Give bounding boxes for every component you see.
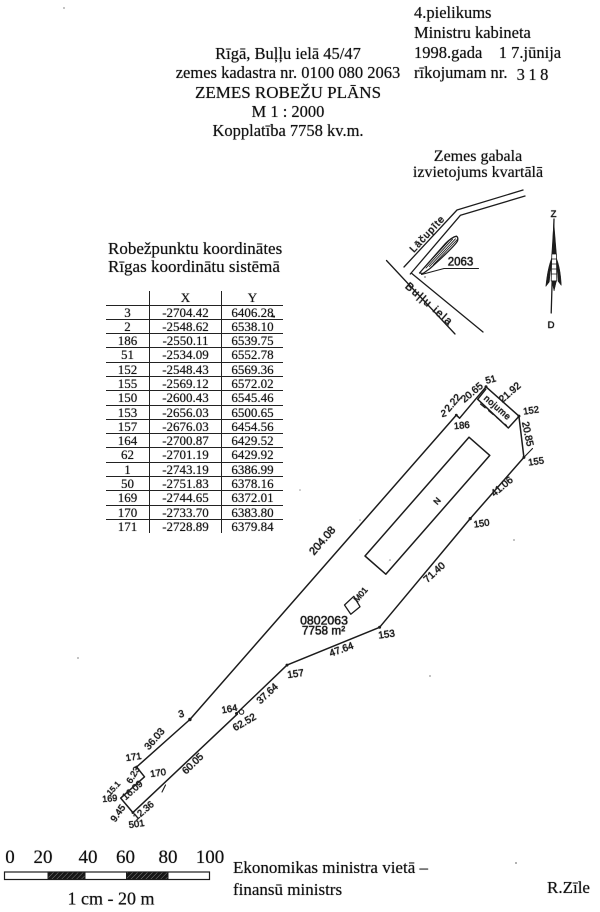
svg-text:170: 170 [150,767,167,780]
svg-text:169: 169 [102,793,118,804]
svg-text:60.05: 60.05 [180,751,206,777]
svg-text:7758 m²: 7758 m² [302,624,345,638]
svg-text:71.40: 71.40 [422,560,448,585]
svg-text:47.64: 47.64 [328,641,356,660]
svg-text:21.92: 21.92 [497,380,523,405]
svg-text:100: 100 [196,847,225,868]
svg-text:20.85: 20.85 [519,421,535,448]
svg-text:80: 80 [159,847,178,868]
svg-text:153: 153 [378,628,396,641]
svg-text:Z: Z [551,209,557,220]
svg-text:155: 155 [528,455,545,468]
svg-text:D: D [548,320,555,331]
svg-text:41.06: 41.06 [489,475,516,500]
svg-text:152: 152 [523,404,540,417]
svg-text:186: 186 [453,420,470,432]
svg-text:N: N [431,495,443,506]
svg-text:51: 51 [484,373,497,386]
svg-text:150: 150 [473,517,490,530]
svg-text:157: 157 [287,668,305,681]
svg-text:62.52: 62.52 [231,712,259,734]
svg-text:2063: 2063 [448,257,474,269]
svg-text:36.03: 36.03 [143,726,168,752]
svg-text:20: 20 [34,847,53,868]
svg-text:171: 171 [125,751,142,764]
svg-text:0: 0 [5,847,15,868]
svg-text:60: 60 [116,847,135,868]
svg-text:37.64: 37.64 [255,681,281,706]
svg-text:204.08: 204.08 [307,524,338,557]
svg-text:1 cm - 20 m: 1 cm - 20 m [68,889,155,909]
svg-text:501: 501 [128,818,145,831]
svg-text:16.09: 16.09 [120,779,145,803]
svg-text:9.45: 9.45 [109,803,129,824]
svg-text:3: 3 [177,708,186,720]
svg-text:40: 40 [79,847,98,868]
svg-text:M01: M01 [351,585,369,604]
